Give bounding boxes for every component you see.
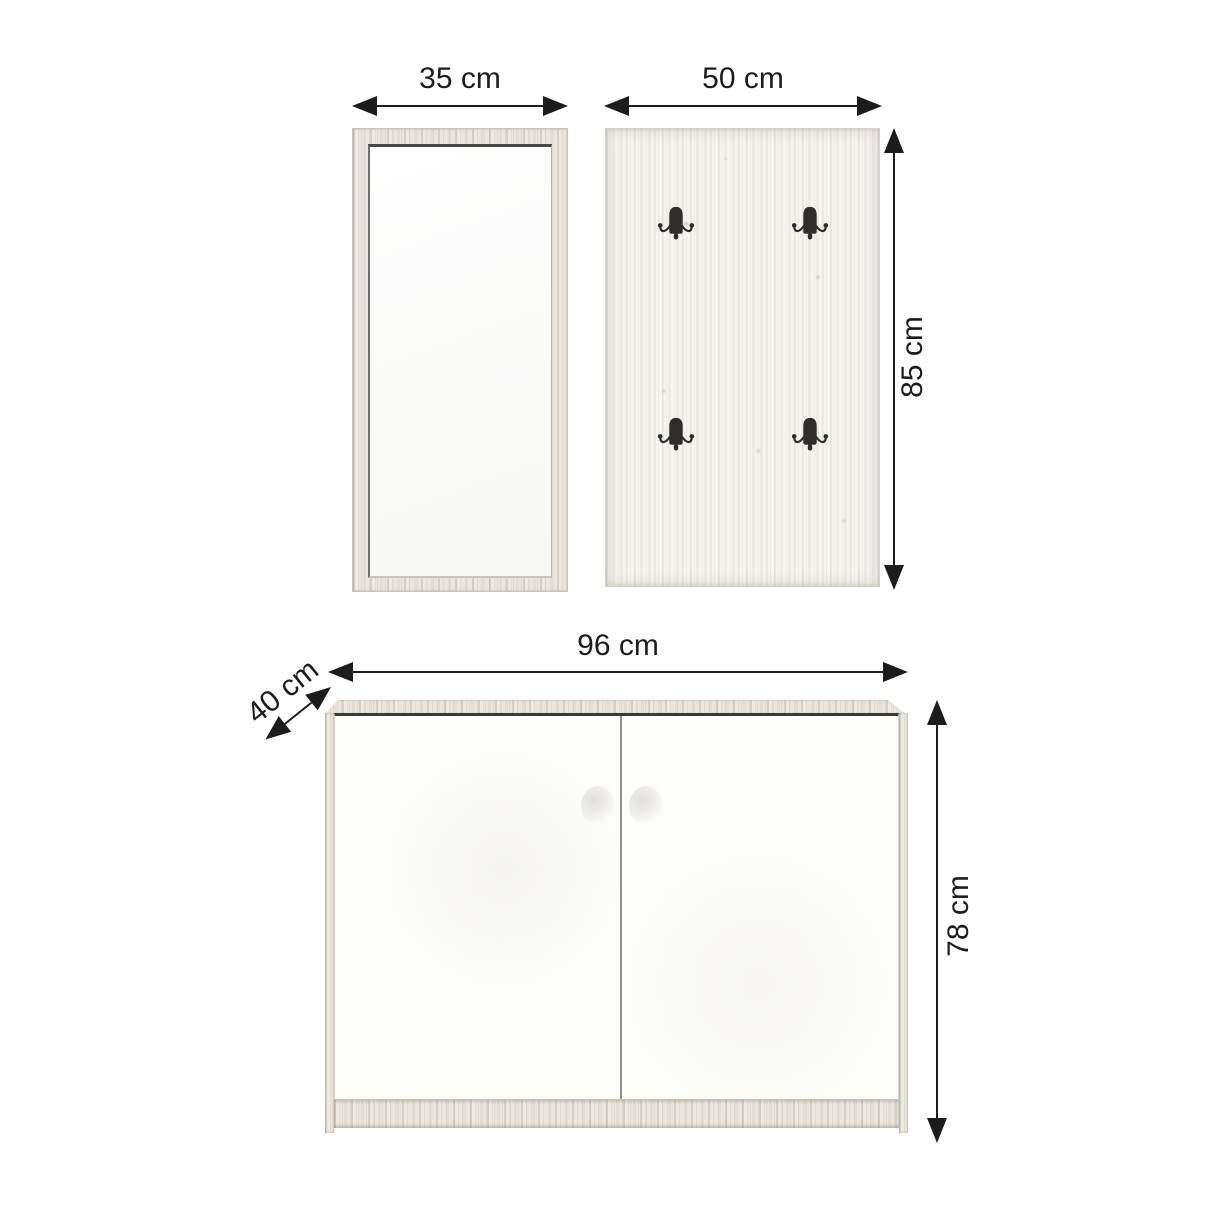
dimension-line: [377, 105, 543, 107]
coat-hook-icon: [656, 202, 696, 252]
dimension-line: [353, 671, 883, 673]
door-divider: [620, 716, 622, 1099]
door-handle-right: [629, 786, 663, 826]
coat-hook-icon: [656, 413, 696, 463]
cabinet-width-dimension: [328, 662, 908, 682]
arrow-down-icon: [927, 1118, 947, 1143]
cabinet-width-label: 96 cm: [328, 629, 908, 663]
panel-height-label: 85 cm: [896, 297, 930, 417]
panel-width-label: 50 cm: [604, 62, 882, 96]
furniture-dimension-diagram: 35 cm 50 cm: [0, 0, 1214, 1214]
arrow-up-icon: [884, 128, 904, 153]
coat-hook-panel: [605, 128, 880, 587]
arrow-right-icon: [543, 96, 568, 116]
mirror-width-dimension: [352, 96, 568, 116]
arrow-right-icon: [857, 96, 882, 116]
dimension-line: [893, 153, 895, 565]
dimension-line: [629, 105, 857, 107]
cabinet-left-side: [325, 713, 334, 1133]
cabinet-right-side: [899, 713, 908, 1133]
mirror-width-label: 35 cm: [352, 62, 568, 96]
wall-mirror: [352, 128, 568, 592]
cabinet-height-label: 78 cm: [942, 856, 976, 976]
coat-hook-icon: [790, 202, 830, 252]
arrow-left-icon: [604, 96, 629, 116]
dimension-line: [936, 725, 938, 1118]
coat-hook-icon: [790, 413, 830, 463]
panel-width-dimension: [604, 96, 882, 116]
arrow-up-icon: [927, 700, 947, 725]
cabinet-plinth: [334, 1100, 899, 1128]
mirror-glass: [368, 144, 552, 578]
arrow-left-icon: [352, 96, 377, 116]
door-handle-left: [581, 786, 615, 826]
arrow-right-icon: [883, 662, 908, 682]
arrow-down-icon: [884, 565, 904, 590]
cabinet-doors: [334, 713, 899, 1100]
cabinet-top-panel: [325, 700, 906, 714]
